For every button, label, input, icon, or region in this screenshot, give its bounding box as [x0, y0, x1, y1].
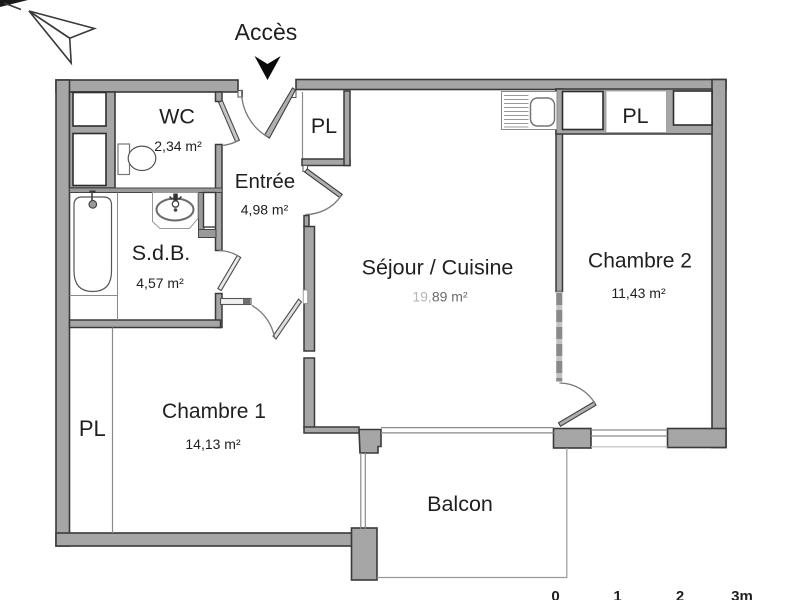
svg-text:Accès: Accès: [235, 19, 298, 45]
svg-text:19,89 m²: 19,89 m²: [412, 288, 468, 304]
svg-text:4,57 m²: 4,57 m²: [136, 275, 184, 291]
svg-text:3m: 3m: [731, 588, 753, 600]
svg-text:Chambre 1: Chambre 1: [162, 400, 266, 423]
svg-text:PL: PL: [622, 104, 648, 128]
svg-text:Entrée: Entrée: [235, 170, 295, 193]
svg-text:4,98 m²: 4,98 m²: [241, 202, 289, 218]
svg-text:11,43 m²: 11,43 m²: [611, 285, 666, 301]
svg-text:1: 1: [613, 588, 621, 600]
svg-text:WC: WC: [159, 105, 195, 129]
svg-text:0: 0: [551, 588, 559, 600]
svg-text:PL: PL: [79, 416, 106, 441]
svg-text:Balcon: Balcon: [427, 492, 493, 516]
svg-text:S.d.B.: S.d.B.: [132, 241, 191, 265]
svg-text:14,13 m²: 14,13 m²: [185, 436, 241, 452]
svg-text:2,34 m²: 2,34 m²: [154, 138, 202, 154]
svg-text:2: 2: [676, 588, 684, 600]
svg-text:Séjour / Cuisine: Séjour / Cuisine: [362, 256, 514, 280]
svg-text:PL: PL: [311, 114, 337, 138]
svg-text:Chambre 2: Chambre 2: [588, 250, 692, 273]
